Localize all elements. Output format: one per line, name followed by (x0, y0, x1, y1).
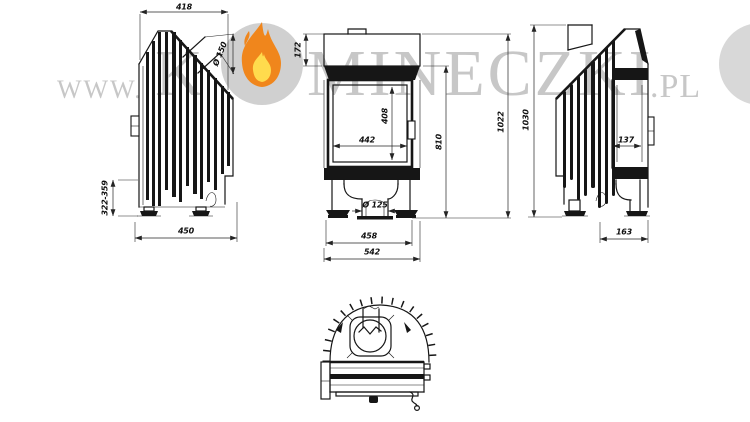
dim-front-total-height: 1022 (497, 111, 506, 132)
dim-left-depth: 450 (178, 227, 194, 236)
dim-front-hood-height: 172 (294, 42, 303, 58)
cold-hand-handle (410, 392, 417, 406)
fireplace-drawing (0, 0, 750, 422)
dim-front-glass-width: 442 (359, 136, 375, 145)
dim-left-base-range: 322-359 (101, 180, 110, 215)
dim-right-foot-width: 163 (616, 228, 632, 237)
bottom-plan-view (321, 300, 433, 410)
dim-front-air-inlet: Ø 125 (362, 201, 387, 210)
dim-right-glass-depth: 137 (618, 136, 634, 145)
dim-right-total-height: 1030 (522, 109, 531, 130)
dim-front-firebox-height: 810 (435, 134, 444, 150)
air-control-knob (369, 396, 378, 403)
dim-front-feet-span: 458 (361, 232, 377, 241)
dim-left-top-depth: 418 (176, 2, 192, 11)
right-side-view (528, 25, 654, 243)
door-latch (408, 121, 415, 139)
technical-drawing-canvas: WWW. K MINECZKI .PL (0, 0, 750, 422)
front-view (303, 29, 511, 262)
dim-front-glass-height: 408 (381, 108, 390, 124)
dim-front-total-width: 542 (364, 248, 380, 257)
